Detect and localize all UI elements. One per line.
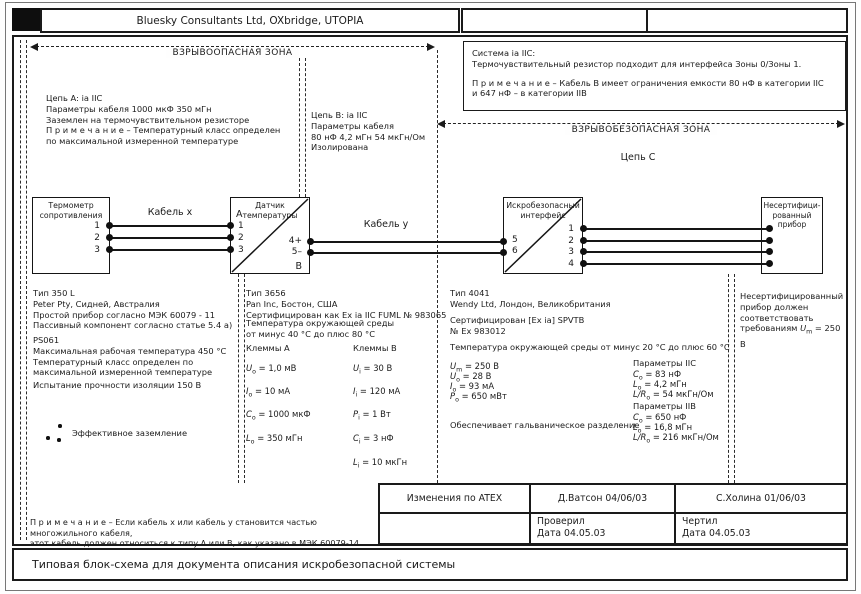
header-right-frame	[461, 8, 848, 33]
terminal-number: 2	[238, 233, 244, 244]
param-line: Co = 1000 мкФ	[246, 409, 311, 424]
terminal-number: 4	[568, 259, 574, 270]
cable-x-wire	[110, 225, 230, 227]
param-line: Uo = 1,0 мВ	[246, 363, 296, 378]
company-title: Bluesky Consultants Ltd, OXbridge, UTOPI…	[137, 15, 364, 27]
titleblock-empty-cell	[380, 512, 529, 543]
terminal-number: 1	[238, 221, 244, 232]
side-b-letter: В	[295, 262, 302, 272]
terminal-number: 6	[512, 246, 518, 257]
terminal-number: 3	[238, 245, 244, 256]
terminal-dot	[106, 234, 113, 241]
sensor-specs-ambient: Температура окружающей среды от минус 40…	[246, 318, 394, 340]
terminal-dot	[307, 238, 314, 245]
earth-symbol-icon	[58, 424, 62, 428]
temperature-sensor-box: Датчик температуры А 1 2 3 4+ 5– В	[230, 197, 310, 274]
terminal-dot	[500, 238, 507, 245]
param-line: Pi = 1 Вт	[353, 409, 391, 424]
terminal-dot	[106, 246, 113, 253]
resistance-thermometer-label: Термометр сопротивления	[33, 198, 109, 220]
param-line: Ci = 3 нФ	[353, 433, 394, 448]
circuit-a-note: Цепь А: ia IIC Параметры кабеля 1000 мкФ…	[46, 93, 280, 147]
cable-y-wire	[310, 241, 503, 243]
terminal-dot	[580, 260, 587, 267]
effective-earth-label: Эффективное заземление	[72, 428, 187, 439]
cable-type-footnote: П р и м е ч а н и е – Если кабель x или …	[30, 517, 385, 549]
sensor-specs-head: Тип 3656 Pan Inc, Бостон, США Сертифицир…	[246, 288, 446, 320]
param-line: Ui = 30 В	[353, 363, 392, 378]
zone0-zone1-dashed-line	[238, 274, 239, 483]
terminal-number: 5	[512, 235, 518, 246]
descriptive-system-document: Bluesky Consultants Ltd, OXbridge, UTOPI…	[0, 0, 861, 594]
hazardous-safe-boundary-dashed-line	[437, 50, 438, 483]
cable-x-label: Кабель x	[128, 207, 212, 218]
hazardous-zone-label: ВЗРЫВООПАСНАЯ ЗОНА	[30, 40, 435, 59]
drawing-caption-strip: Типовая блок-схема для документа описани…	[12, 548, 848, 581]
terminal-dot	[766, 225, 773, 232]
uncertified-device-note: Несертифицированный прибор должен соотве…	[740, 291, 846, 350]
circuit-b-note: Цепь В: ia IIC Параметры кабеля 80 нФ 4,…	[311, 110, 425, 153]
interface-cert: Сертифицирован [Ex ia] SPVTB № Ex 983012	[450, 315, 584, 337]
hazardous-zone-text: ВЗРЫВООПАСНАЯ ЗОНА	[166, 48, 300, 58]
header-right-divider	[646, 10, 648, 31]
interface-specs-head: Тип 4041 Wendy Ltd, Лондон, Великобритан…	[450, 288, 611, 310]
terminal-dot	[766, 248, 773, 255]
thermometer-specs-block1: Тип 350 L Peter Pty, Сидней, Австралия П…	[33, 288, 232, 331]
system-note-box: Система ia IIC: Термочувствительный рези…	[463, 41, 846, 111]
terminal-number: 4+	[289, 236, 302, 247]
terminal-number: 1	[94, 221, 100, 232]
terminal-dot	[307, 249, 314, 256]
hazardous-zone-arrow: ВЗРЫВООПАСНАЯ ЗОНА	[30, 40, 435, 53]
title-block: Изменения по ATEX Д.Ватсон 04/06/03 С.Хо…	[378, 483, 848, 545]
thermometer-specs-block2: PS061 Максимальная рабочая температура 4…	[33, 335, 226, 378]
terminal-number: 3	[94, 245, 100, 256]
terminal-dot	[227, 234, 234, 241]
terminal-number: 1	[568, 224, 574, 235]
terminal-number: 5–	[292, 247, 302, 258]
terminal-dot	[227, 246, 234, 253]
param-line: Li = 10 мкГн	[353, 457, 407, 472]
galvanic-isolation-note: Обеспечивает гальваническое разделение	[450, 420, 639, 431]
left-boundary-dashed-line	[26, 40, 27, 540]
earth-symbol-icon	[46, 436, 50, 440]
header-black-block	[12, 8, 40, 31]
company-title-box: Bluesky Consultants Ltd, OXbridge, UTOPI…	[40, 8, 460, 33]
safe-zone-text: ВЗРЫВОБЕЗОПАСНАЯ ЗОНА	[565, 125, 718, 135]
resistance-thermometer-box: Термометр сопротивления 1 2 3	[32, 197, 110, 274]
terminal-dot	[580, 225, 587, 232]
output-wire	[583, 251, 770, 253]
titleblock-changes-cell: Изменения по ATEX	[380, 485, 529, 512]
system-note: П р и м е ч а н и е – Кабель В имеет огр…	[472, 78, 837, 100]
titleblock-drawn-date-cell: Чертил Дата 04.05.03	[674, 512, 846, 543]
terminal-number: 3	[568, 247, 574, 258]
terminal-dot	[106, 222, 113, 229]
drawing-caption: Типовая блок-схема для документа описани…	[32, 558, 455, 571]
is-interface-label: Искробезопасный интерфейс	[504, 198, 582, 220]
output-wire	[583, 228, 770, 230]
terminal-dot	[227, 222, 234, 229]
safe-zone-arrow: ВЗРЫВОБЕЗОПАСНАЯ ЗОНА	[437, 117, 845, 130]
terminal-dot	[766, 237, 773, 244]
circuit-c-label: Цепь С	[583, 152, 693, 163]
terminal-dot	[766, 260, 773, 267]
interface-ambient: Температура окружающей среды от минус 20…	[450, 342, 730, 353]
param-line: Ii = 120 мА	[353, 386, 400, 401]
param-line: Lo = 350 мГн	[246, 433, 302, 448]
iib-params-title: Параметры IIB	[633, 401, 696, 412]
titleblock-checked-date-cell: Проверил Дата 04.05.03	[529, 512, 674, 543]
output-wire	[583, 240, 770, 242]
cable-x-wire	[110, 249, 230, 251]
terminal-dot	[580, 248, 587, 255]
terminals-b-title: Клеммы В	[353, 343, 397, 354]
terminal-number: 2	[94, 233, 100, 244]
titleblock-drafter-cell: С.Холина 01/06/03	[674, 485, 846, 512]
safe-zone-label: ВЗРЫВОБЕЗОПАСНАЯ ЗОНА	[437, 117, 845, 136]
param-line: Po = 650 мВт	[450, 391, 507, 406]
output-wire	[583, 263, 770, 265]
system-intro: Система ia IIC: Термочувствительный рези…	[472, 48, 837, 70]
cable-x-wire	[110, 237, 230, 239]
terminal-dot	[500, 249, 507, 256]
terminals-a-title: Клеммы А	[246, 343, 290, 354]
cable-y-wire	[310, 252, 503, 254]
cable-y-label: Кабель y	[344, 219, 428, 230]
zone0-zone1-dashed-line	[305, 58, 306, 197]
iic-params-title: Параметры IIC	[633, 358, 696, 369]
zone0-zone1-dashed-line	[299, 58, 300, 197]
is-interface-box: Искробезопасный интерфейс 5 6 1 2 3 4	[503, 197, 583, 274]
param-line: L/Ro = 216 мкГн/Ом	[633, 432, 719, 447]
insulation-test-note: Испытание прочности изоляции 150 В	[33, 380, 201, 391]
terminal-number: 2	[568, 236, 574, 247]
left-boundary-dashed-line	[20, 40, 21, 540]
right-boundary-dashed-line	[734, 274, 735, 483]
param-line: Io = 10 мА	[246, 386, 290, 401]
right-boundary-dashed-line	[728, 274, 729, 483]
terminal-dot	[580, 237, 587, 244]
side-a-letter: А	[236, 210, 243, 220]
zone0-zone1-dashed-line	[244, 274, 245, 483]
earth-symbol-icon	[57, 438, 61, 442]
titleblock-checker-cell: Д.Ватсон 04/06/03	[529, 485, 674, 512]
